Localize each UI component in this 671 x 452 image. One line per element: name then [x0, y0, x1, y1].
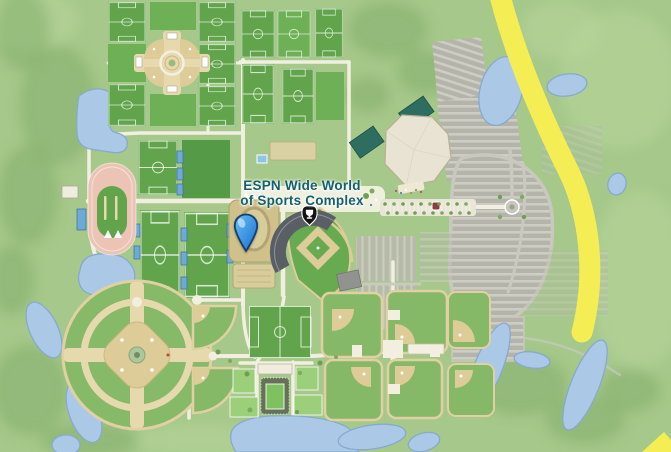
soccer-field-grid-west [138, 140, 230, 300]
support-building [62, 186, 78, 198]
soccer-field-bottom [249, 306, 311, 358]
map-canvas[interactable]: ESPN Wide World of Sports Complex [0, 0, 671, 452]
location-label[interactable]: ESPN Wide World of Sports Complex [240, 178, 363, 208]
trophy-glyph [306, 210, 313, 219]
location-label-line2: of Sports Complex [240, 193, 363, 208]
tennis-complex [230, 364, 322, 417]
selected-location-pin-icon[interactable] [233, 213, 259, 253]
location-label-line1: ESPN Wide World [240, 178, 363, 193]
map-art [0, 0, 671, 452]
